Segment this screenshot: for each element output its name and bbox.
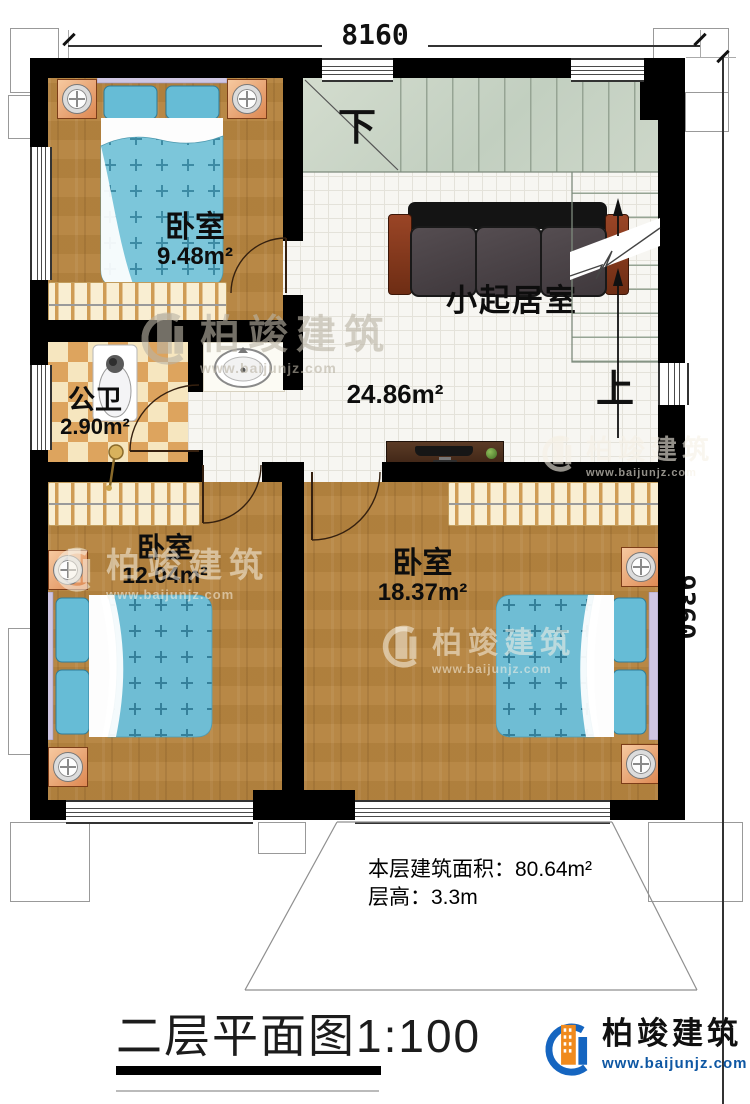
eave-box-left-lower [8,628,32,755]
wall [393,58,571,78]
bedroom2-label: 卧室 12.04m² [85,533,245,588]
window [322,58,393,82]
floor-plan-sheet: 8160 9360 卧室 9.48m² [0,0,750,1104]
dim-extension-left [68,30,69,58]
window [355,800,610,824]
window [571,58,644,82]
lamp-icon [63,85,91,113]
wall [48,462,202,482]
nightstand [48,747,88,787]
nightstand [48,550,88,590]
dim-line-right [722,58,724,1104]
room-area: 12.04m² [85,563,245,588]
brand-logo: 柏竣建筑 www.baijunjz.com [542,1018,747,1082]
monitor-icon [415,446,473,456]
wall [30,58,322,78]
title-underline-thin [116,1090,379,1092]
sink-basin [206,344,280,390]
living-room-label: 小起居室 [432,284,592,317]
wall [658,58,685,363]
wall [30,450,48,820]
lamp-icon [627,553,655,581]
title-underline [116,1066,381,1075]
brand-url: www.baijunjz.com [602,1055,747,1072]
room-name: 卧室 [115,212,275,244]
sofa-back [408,202,607,229]
lamp-icon [627,750,655,778]
wall [262,462,304,482]
window [66,800,253,824]
eave-box-left-upper [8,95,32,139]
wall [658,405,685,820]
wall [30,280,48,365]
eave-box-bottom-right [648,822,743,902]
floor-height-note: 层高：3.3m [368,884,478,912]
nightstand [227,79,267,119]
stair-down-label: 下 [338,96,376,151]
brand-logo-icon [542,1018,594,1082]
sheet-title: 二层平面图1:100 [116,1000,481,1066]
window [658,363,689,405]
dim-extension-right [700,30,701,58]
dim-width-label: 8160 [322,18,428,48]
bed-double [496,592,658,740]
eave-box-bottom-center [258,822,306,854]
room-name: 卧室 [335,548,510,580]
sofa [388,202,627,296]
plant-icon [486,448,497,459]
bedroom3-label: 卧室 18.37m² [335,548,510,606]
room-area: 18.37m² [335,580,510,606]
window [30,365,52,450]
nightstand [57,79,97,119]
wall [48,320,303,342]
lamp-icon [54,753,82,781]
nightstand [621,744,661,784]
dim-extension-top-right [686,57,736,58]
lamp-icon [233,85,261,113]
floor-area-note: 本层建筑面积：80.64m² [368,856,592,884]
stair-upper-treads [400,78,658,172]
living-room-area: 24.86m² [330,380,460,408]
room-area: 9.48m² [115,244,275,270]
wall [30,58,48,147]
wall [382,462,658,482]
wall [610,800,685,820]
lamp-icon [54,556,82,584]
nightstand [621,547,661,587]
room-area: 24.86m² [330,380,460,408]
room-name: 卧室 [85,533,245,563]
stair-up-label: 上 [596,358,634,413]
wall [282,482,304,800]
sofa-arm [388,214,412,295]
wall [253,790,355,820]
wall [30,800,66,820]
window [30,147,52,280]
bedroom1-label: 卧室 9.48m² [115,212,275,270]
brand-name: 柏竣建筑 [602,1018,747,1049]
wardrobe-hangers [448,482,660,526]
wall [283,78,303,241]
room-name: 小起居室 [432,284,592,317]
eave-box-bottom-left [10,822,90,902]
wall [283,342,303,390]
sofa-arm [605,214,629,295]
wardrobe-hangers [48,482,200,526]
bed-double [44,592,216,740]
wall [188,342,203,392]
